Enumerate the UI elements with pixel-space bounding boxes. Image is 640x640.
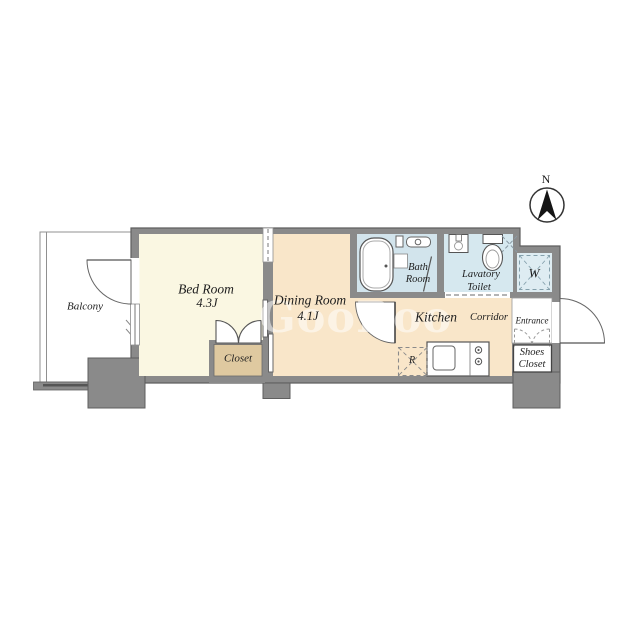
bedroom-size-label: 4.3J [196,297,217,310]
front-door-swing [560,299,605,344]
dining-room-size-label: 4.1J [297,310,318,323]
wall-pillar-right [513,372,560,408]
shoes-closet-label-line1: Shoes [520,348,545,359]
bath-room-label-line2: Room [406,275,431,286]
compass-north-label: N [542,173,551,185]
bath-room-label-line1: Bath [408,263,428,274]
toilet [483,235,503,271]
washer-space-label: W [529,267,540,280]
entrance-label: Entrance [516,317,549,326]
balcony-label: Balcony [67,302,103,313]
kitchen-counter [427,342,489,376]
kitchen-sink [433,346,455,370]
bathtub [360,238,393,291]
corridor-label: Corridor [470,313,508,324]
partition-window [263,228,273,262]
dining-room-label: Dining Room [274,293,346,307]
front-door-opening [552,302,561,343]
balcony-door-opening [131,258,140,304]
wall-step-center [263,383,290,399]
shoes-closet-label-line2: Closet [519,360,546,371]
bedroom-window [131,304,140,345]
closet-label: Closet [224,354,252,365]
lavatory-label-line1: Lavatory [462,270,500,281]
lavatory-label-line2: Toilet [467,283,491,294]
wall-pillar-left [88,358,145,408]
bedroom-label: Bed Room [178,282,234,296]
kitchen-label: Kitchen [415,310,457,324]
refrigerator-space-label: R [409,356,415,366]
floor-plan-page: GooRoo Balcony Bed Room 4.3J Dining Room… [0,0,640,640]
north-compass-icon [530,188,564,222]
lavatory-sink [449,235,468,253]
